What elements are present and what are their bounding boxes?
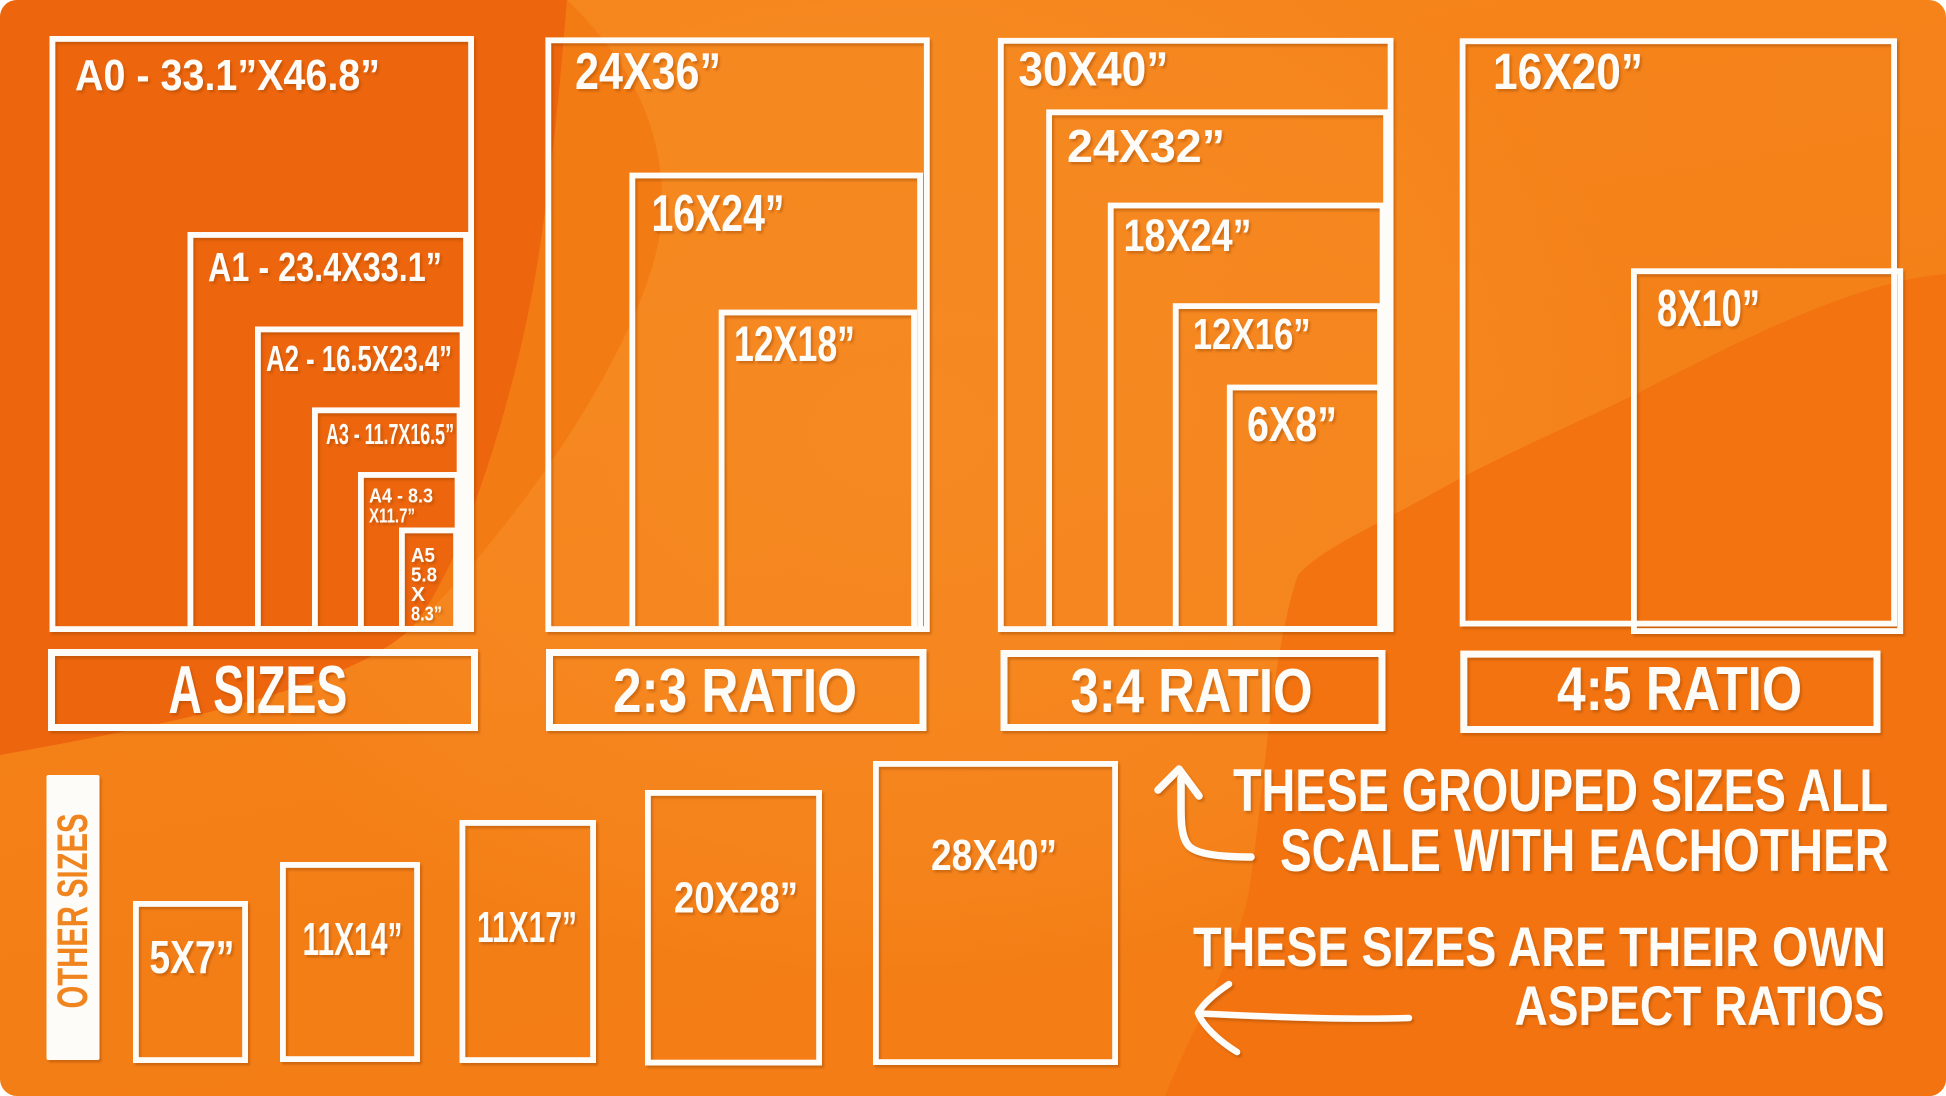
svg-text:X11.7”: X11.7” [369,506,415,528]
svg-text:THESE SIZES ARE THEIR OWN: THESE SIZES ARE THEIR OWN [1193,915,1886,978]
svg-text:24X32”: 24X32” [1067,120,1225,172]
svg-text:A3 - 11.7X16.5”: A3 - 11.7X16.5” [326,419,454,451]
svg-text:18X24”: 18X24” [1124,210,1252,261]
svg-text:A2 - 16.5X23.4”: A2 - 16.5X23.4” [266,338,452,379]
svg-text:5X7”: 5X7” [149,931,234,983]
svg-text:8.3”: 8.3” [411,604,442,626]
svg-text:24X36”: 24X36” [575,42,721,100]
svg-text:2:3 RATIO: 2:3 RATIO [613,656,857,726]
svg-text:A0 - 33.1”X46.8”: A0 - 33.1”X46.8” [75,52,380,100]
svg-text:8X10”: 8X10” [1657,280,1760,338]
svg-text:16X20”: 16X20” [1493,43,1643,100]
svg-text:6X8”: 6X8” [1247,398,1337,452]
svg-text:12X16”: 12X16” [1193,311,1311,359]
svg-text:11X14”: 11X14” [303,913,403,965]
svg-text:A SIZES: A SIZES [168,652,347,728]
svg-text:16X24”: 16X24” [652,184,785,242]
svg-text:12X18”: 12X18” [734,316,855,372]
svg-text:30X40”: 30X40” [1018,44,1168,97]
svg-text:20X28”: 20X28” [674,874,798,923]
svg-text:A4 - 8.3: A4 - 8.3 [369,486,433,508]
svg-text:4:5 RATIO: 4:5 RATIO [1557,654,1802,724]
svg-text:A1 - 23.4X33.1”: A1 - 23.4X33.1” [208,244,442,290]
svg-text:OTHER SIZES: OTHER SIZES [49,814,97,1009]
svg-text:THESE GROUPED SIZES ALL: THESE GROUPED SIZES ALL [1233,757,1888,824]
svg-text:3:4 RATIO: 3:4 RATIO [1071,656,1313,726]
svg-text:28X40”: 28X40” [931,831,1057,880]
svg-text:ASPECT RATIOS: ASPECT RATIOS [1515,974,1885,1037]
svg-text:11X17”: 11X17” [477,903,577,952]
svg-text:SCALE WITH EACHOTHER: SCALE WITH EACHOTHER [1280,817,1889,884]
